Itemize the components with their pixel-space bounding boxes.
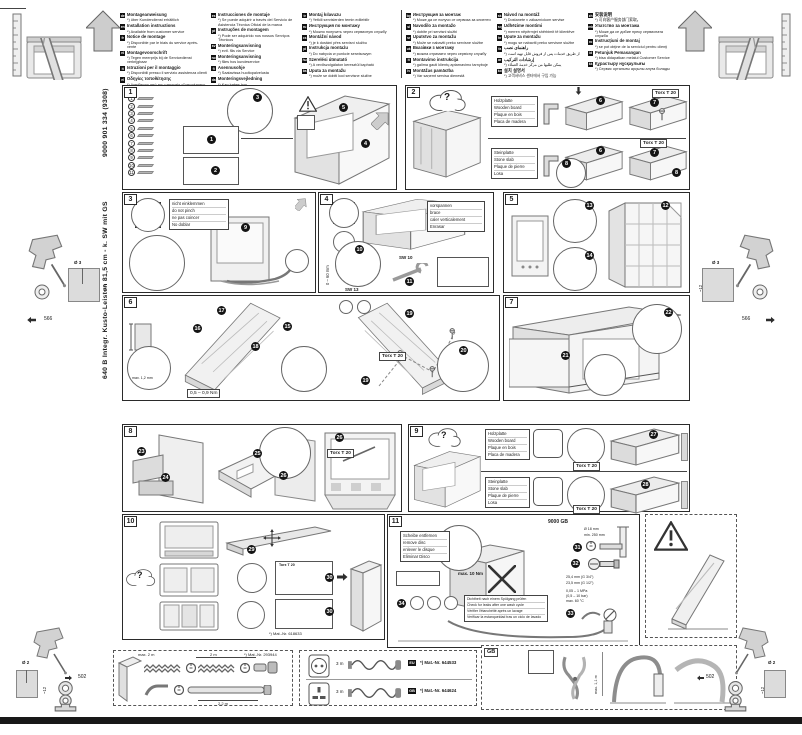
hinge-icon: [722, 680, 749, 713]
language-code-badge: hu: [302, 58, 307, 63]
floor-hose-art: [398, 619, 628, 645]
no-kink-box: [297, 115, 315, 130]
washer-icon: [752, 284, 768, 300]
callout-9: 9: [241, 223, 250, 232]
parts-list-row: 4: [128, 117, 153, 124]
step-number: 8: [124, 426, 137, 437]
pressure-bar-spec: (0,5 – 10 bar): [566, 594, 588, 598]
step-6-panel: 6 max. 1,2 mm 17 16 18 15 0,5 – 0,9 Nm 1…: [122, 295, 500, 401]
step-number: 2: [407, 87, 420, 98]
language-title: Вказівки з монтажу: [413, 46, 454, 51]
drill-depth-block: [16, 670, 38, 698]
language-code-badge: it: [120, 66, 125, 71]
part-number-badge: 10: [128, 162, 135, 169]
countertop-art: [609, 427, 681, 467]
language-title: Navodilo za montažo: [413, 24, 456, 29]
extension-hose-icon: [198, 663, 238, 673]
step-7-panel: 7 21 22: [503, 295, 690, 401]
cabinet-variant-3: [159, 601, 219, 631]
language-entry: mkУпатство за монтажа*) Може да се добие…: [588, 24, 675, 38]
stone-label-box: Steinplatte Stone slab Plaque de pierre …: [485, 477, 530, 508]
part-number-badge: 8: [128, 147, 135, 154]
language-code-badge: hr: [497, 35, 502, 40]
parts-list-row: 9: [128, 154, 153, 161]
language-entry: trMontaj kılavuzu*) Yetkili servislerden…: [302, 13, 389, 23]
language-title: Monteringsanvisning: [218, 55, 261, 60]
language-title: Montāžas pamācība: [413, 69, 454, 74]
temp-spec: max. 60 °C: [566, 599, 584, 603]
part-icon: [136, 119, 153, 122]
torque-limit: max. 10 Nm: [458, 571, 483, 576]
parts-list-row: 10: [128, 162, 153, 169]
language-note: *) Disponible par le biais du service ap…: [127, 41, 207, 49]
mat-nr-label: *) Mat.-Nr. 618633: [269, 631, 302, 636]
step-11-panel: 11 Scheibe entfernen remove disc enlever…: [387, 514, 640, 648]
language-entry: faراهنمای نصب*) از طریق خدمات پس از فروش…: [497, 46, 584, 56]
language-entry: ukВказівки з монтажу*) можна отримати че…: [406, 46, 493, 56]
power-cord-box: 3 m EU *) Mat.-Nr. 644533 3 m GB *) Mat.…: [299, 650, 477, 706]
dim-arrow-icon: [760, 315, 782, 325]
dim-line: [196, 657, 256, 658]
language-note: *) Може да се получи от сервиза за клиен…: [413, 18, 493, 22]
language-code-badge: no: [211, 55, 216, 60]
hose-ok-box: [396, 571, 440, 586]
callout-30: 30: [325, 573, 334, 582]
drill-icon: [20, 233, 72, 289]
language-note: *) A vevőszolgálaton keresztül kapható: [309, 63, 389, 67]
language-code-badge: pl: [302, 46, 307, 51]
language-entry: esInstrucciones de montaje*) Se puede ad…: [211, 13, 298, 27]
stone-label-box: Steinplatte Stone slab Plaque de pierre …: [491, 148, 538, 179]
label-line: Stone slab: [488, 486, 527, 493]
language-entry: plInstrukcja montażu*) Do nabycia w punk…: [302, 46, 389, 56]
callout-16: 16: [193, 324, 202, 333]
connector-icon: [252, 661, 280, 674]
callout-32: 32: [571, 559, 580, 568]
callout-27: 27: [649, 430, 658, 439]
callout-26: 26: [279, 471, 288, 480]
language-code-badge: bs: [302, 69, 307, 74]
callout-10: 10: [355, 245, 364, 254]
wrench-size-front: SW 13: [345, 287, 359, 292]
language-column-6: zh安装说明*) 可向客户服务部门索取。mkУпатство за монтаж…: [588, 13, 675, 73]
cord-icon: [348, 655, 402, 675]
detail-circle: [567, 428, 605, 466]
callout-11: 11: [405, 277, 414, 286]
ok-circle: [339, 300, 353, 314]
hose-extension-box: max. 2 m 2 m *) Mat.-Nr. 293944 2,2 m: [113, 650, 293, 706]
language-entry: fiAsennusohje*) Saatavissa huoltopalvelu…: [211, 66, 298, 76]
socket-gb-icon: [308, 682, 330, 706]
ref-number: 9000 GB: [548, 519, 568, 525]
language-note: *) dobite pri servisni službi: [413, 30, 493, 34]
language-entry: ko설치 설명서*) 고객서비스 센터에서 구입 가능: [497, 69, 584, 79]
language-note: *) Yetkili servislerden temin edilebilir: [309, 18, 389, 22]
installation-sheet: deMontageanweisung*) über Kundendienst e…: [0, 0, 802, 735]
language-note: *) Pode ser adquirido nos nossos Serviço…: [218, 34, 298, 42]
language-note: *) Dostanete v zákazníckom servise: [504, 18, 584, 22]
hole-depth-label: ~12: [102, 285, 107, 292]
language-title: Upute za montažu: [504, 35, 541, 40]
language-entry: zh安装说明*) 可向客户服务部门索取。: [588, 13, 675, 23]
language-entry: bgИнструкция за монтаж*) Може да се полу…: [406, 13, 493, 23]
question-mark: ?: [444, 92, 450, 103]
language-note: *) merren nëpërmjet shërbimit të klientë…: [504, 30, 584, 34]
parts-list-row: 7: [128, 139, 153, 146]
language-code-badge: fr: [120, 35, 125, 40]
cord-length-a: 3 m: [336, 661, 344, 666]
adjust-range-dim: 0 – 60 mm: [325, 265, 330, 285]
edge-gap-dim: max. 1,2 mm: [132, 376, 153, 380]
callout-7: 7: [650, 98, 659, 107]
doc-number: 9000 901 334 (9308): [102, 85, 109, 161]
language-code-badge: el: [120, 77, 125, 82]
callout-14: 14: [585, 251, 594, 260]
step-5-panel: 5 13 14 12: [503, 192, 690, 293]
torx-label: Torx T 20: [573, 462, 600, 471]
bracket-icon: [542, 100, 562, 126]
callout-7: 7: [650, 148, 659, 157]
label-line: Losa: [488, 500, 527, 506]
language-entry: csMontážní návod*) je k dostání přes ser…: [302, 35, 389, 45]
language-code-badge: sr: [406, 35, 411, 40]
language-code-badge: ru: [302, 24, 307, 29]
language-code-badge: zh: [588, 13, 593, 18]
torx-label: Torx T 20: [640, 139, 667, 148]
callout-28: 28: [641, 480, 650, 489]
detail-circle: [281, 346, 327, 392]
language-note: *) Do nabycia w punkcie serwisowym: [309, 52, 389, 56]
label-line: Wooden board: [488, 438, 527, 445]
callout-12: 12: [661, 201, 670, 210]
callout-1: 1: [207, 135, 216, 144]
parts-list-row: 2: [128, 102, 153, 109]
part-number-badge: 6: [128, 132, 135, 139]
detail-circle: [632, 304, 682, 354]
label-line: enlever le disque: [403, 547, 447, 554]
prohibited-cross-icon: [488, 565, 516, 593]
detail-circle-small: [285, 249, 309, 273]
language-title: Istruzioni per il montaggio: [127, 66, 181, 71]
language-title: Monteringsvejledning: [218, 77, 262, 82]
label-line: No doblar: [172, 222, 226, 228]
language-title: Instrucciones de montaje: [218, 13, 270, 18]
label-line: do not pinch: [172, 208, 226, 215]
crop-mark: [0, 8, 26, 9]
door-film-art: [607, 197, 687, 290]
cabinet-corner-art: [349, 559, 383, 635]
dim-line: [602, 652, 603, 696]
part-number-badge: 11: [128, 169, 135, 176]
open-dishwasher-art: [323, 431, 397, 511]
parts-list-row: 6: [128, 132, 153, 139]
leaning-panel-art: [666, 549, 730, 631]
detail-circle: [237, 601, 265, 629]
corrugated-hose-icon: [144, 663, 184, 673]
label-line: Eliminar Disco: [403, 554, 447, 560]
language-entry: itIstruzioni per il montaggio*) Disponib…: [120, 66, 207, 76]
language-title: Құрастыру нұсқаулығы: [595, 62, 645, 67]
eu-mat-nr: *) Mat.-Nr. 644533: [420, 660, 456, 665]
hole-depth-label: ~12: [42, 687, 47, 694]
callout-6: 6: [596, 146, 605, 155]
language-note: *) Se puede adquirir a través del Servic…: [218, 18, 298, 26]
warning-triangle-icon: [299, 96, 317, 112]
step-number: 1: [124, 87, 137, 98]
dim-arrow-icon: [693, 674, 707, 682]
language-title: Montaj kılavuzu: [309, 13, 341, 18]
part-icon: [136, 112, 153, 115]
parts-list-row: 5: [128, 125, 153, 132]
wood-label-box: Holzplatte Wooden board Plaque en bois P…: [485, 429, 530, 460]
language-entry: deMontageanweisung*) über Kundendienst e…: [120, 13, 207, 23]
hose-clamp-icon: [586, 541, 626, 553]
length-b-label: 2,2 m: [218, 701, 228, 706]
language-code-badge: lv: [406, 69, 411, 74]
callout-29: 29: [247, 545, 256, 554]
language-code-badge: da: [211, 77, 216, 82]
drill-icon: [730, 233, 782, 289]
wood-icon-box: [533, 429, 563, 458]
wood-label-box: Holzplatte Wooden board Plaque en bois P…: [491, 96, 538, 127]
stone-icon-box: [533, 477, 563, 506]
spring-clip-box: [275, 599, 333, 629]
drain-hose-curve-icon: [610, 652, 666, 704]
label-line: brace: [430, 210, 482, 217]
hole-line: [26, 670, 27, 683]
language-code-badge: nl: [120, 51, 125, 56]
length-a-label: 2 m: [210, 652, 217, 657]
arrow-up-icon: [295, 197, 307, 211]
language-entry: frNotice de montage*) Disponible par le …: [120, 35, 207, 49]
language-code-badge: kk: [588, 62, 593, 67]
door-template-art: [161, 300, 306, 398]
dishwasher-iso-art: [412, 102, 482, 182]
language-note: *) galima gauti klientų aptarnavimo tarn…: [413, 63, 493, 67]
parts-list-row: 11: [128, 169, 153, 176]
callout-5: 5: [339, 103, 348, 112]
part-number-badge: 4: [128, 117, 135, 124]
part-icon: [136, 142, 153, 145]
step-3-panel: 3 nicht einklemmen do not pinch ne pas c…: [122, 192, 316, 293]
language-note: *) može se dobiti kod servisne službe: [309, 74, 389, 78]
mat-nr-label: *) Mat.-Nr. 293944: [244, 652, 277, 657]
language-note: *) über Kundendienst erhältlich: [127, 18, 207, 22]
callout-21: 21: [561, 351, 570, 360]
dim-arrow-icon: [62, 674, 76, 682]
part-number-badge: 2: [128, 103, 135, 110]
check-icon-circle: [444, 596, 458, 610]
side-panel-art: [117, 655, 143, 703]
part-icon: [136, 127, 153, 130]
language-column-3: trMontaj kılavuzu*) Yetkili servislerden…: [302, 13, 389, 80]
language-title: Инструкция за монтаж: [413, 13, 461, 18]
alignment-pictogram-box: [437, 257, 489, 287]
torx-label: Torx T 20: [327, 449, 354, 458]
eu-region-badge: EU: [408, 660, 416, 666]
step-number: 4: [320, 194, 333, 205]
language-entry: enInstallation instructions*) Available …: [120, 24, 207, 34]
step-9-panel: 9 ? Holzplatte Wooden board Plaque en bo…: [408, 424, 690, 512]
detail-circle: [556, 158, 586, 188]
ruler-icon: [781, 13, 791, 77]
callout-22: 22: [664, 308, 673, 317]
callout-20: 20: [459, 346, 468, 355]
language-title: Uputa za montažu: [309, 69, 346, 74]
part-icon: [136, 149, 153, 152]
label-line: Plaque de pierre: [488, 493, 527, 500]
pinch-note-box: nicht einklemmen do not pinch ne pas coi…: [169, 199, 229, 230]
language-note: *) Available from customer service: [127, 30, 207, 34]
language-entry: huSzerelési útmutató*) A vevőszolgálaton…: [302, 58, 389, 68]
language-title: Installation instructions: [127, 24, 175, 29]
pliers-icon: [556, 654, 596, 702]
thread-size-a: 25,4 mm (G 3/4"): [566, 575, 593, 579]
language-code-badge: cs: [302, 35, 307, 40]
language-code-badge: de: [120, 13, 125, 18]
gb-mat-nr: *) Mat.-Nr. 644624: [420, 688, 456, 693]
step-number: 5: [505, 194, 518, 205]
drill-depth-block: [764, 670, 786, 698]
language-note: *) je k dostání přes servisní službu: [309, 41, 389, 45]
language-title: Udhëzime montimi: [504, 24, 542, 29]
arrow-up-icon: [86, 10, 120, 52]
language-note: *) يمكن طلبها من مركز خدمة العملاء: [504, 63, 584, 67]
language-note: *) fåes hos kundeservice: [218, 60, 298, 64]
hole-depth-label: ~12: [698, 285, 703, 292]
drill-icon: [730, 626, 776, 676]
language-column-1: deMontageanweisung*) über Kundendienst e…: [120, 13, 207, 92]
language-entry: lvMontāžas pamācība*) Var saņemt servisa…: [406, 69, 493, 79]
language-title: Οδηγίες τοποθέτησης: [127, 77, 171, 82]
language-code-badge: sv: [211, 44, 216, 49]
part-icon: [136, 164, 153, 167]
inner-door-art: [511, 215, 549, 277]
language-entry: kkҚұрастыру нұсқаулығы*) Сервис орталығы…: [588, 62, 675, 72]
callout-8: 8: [672, 168, 681, 177]
hose-diameter-dim: Ø 18 mm: [584, 527, 599, 531]
step-number: 6: [124, 297, 137, 308]
clamp-icon: [240, 663, 250, 673]
language-title: 설치 설명서: [504, 69, 525, 74]
language-title: Montážní návod: [309, 35, 341, 40]
hole-depth-label: ~12: [760, 687, 765, 694]
drill-depth-block: [702, 268, 734, 302]
language-title: Instruções de montagem: [218, 28, 269, 33]
callout-24: 24: [161, 473, 170, 482]
offset-dim: 566: [742, 316, 750, 322]
language-entry: arإرشادات التركيب*) يمكن طلبها من مركز خ…: [497, 58, 584, 68]
hole-diameter-label: Ø 3: [74, 260, 81, 265]
label-line: Steinplatte: [488, 479, 527, 486]
part-icon: [136, 97, 153, 100]
part-icon: [136, 171, 153, 174]
leader-line: [241, 138, 293, 139]
min-height-dim: min. 250 mm: [584, 533, 605, 537]
offset-dim: 502: [78, 674, 86, 680]
step-number: 11: [389, 516, 402, 527]
label-line: remove disc: [403, 540, 447, 547]
label-line: Steinplatte: [494, 150, 535, 157]
washer-icon: [34, 284, 50, 300]
clamp-icon: [186, 663, 196, 673]
language-title: Asennusohje: [218, 66, 245, 71]
callout-33: 33: [566, 609, 575, 618]
language-code-badge: tr: [302, 13, 307, 18]
language-column-4: bgИнструкция за монтаж*) Може да се полу…: [406, 13, 493, 80]
language-title: إرشادات التركيب: [504, 58, 534, 63]
language-note: *) bisa didapatkan melalui Customer Serv…: [595, 56, 675, 60]
callout-19: 19: [405, 309, 414, 318]
language-code-badge: sq: [497, 24, 502, 29]
torx-label: Torx T 20: [573, 505, 600, 514]
label-line: Placa de madera: [494, 119, 535, 125]
screw-icon: [658, 108, 666, 122]
callout-19: 19: [361, 376, 370, 385]
hole-line: [82, 268, 83, 284]
torx-label: Torx T 20: [652, 89, 679, 98]
language-title: Montagevoorschrift: [127, 51, 167, 56]
part-icon: [136, 105, 153, 108]
language-column-5: skNávod na montáž*) Dostanete v zákazníc…: [497, 13, 584, 80]
label-line: Plaque de pierre: [494, 164, 535, 171]
callout-31: 31: [573, 543, 582, 552]
language-entry: ltMontavimo instrukcija*) galima gauti k…: [406, 58, 493, 68]
language-code-badge: sk: [497, 13, 502, 18]
callout-34: 34: [397, 599, 406, 608]
part-icon: [136, 134, 153, 137]
label-line: nicht einklemmen: [172, 201, 226, 208]
language-code-badge: ro: [588, 39, 593, 44]
language-note: *) 고객서비스 센터에서 구입 가능: [504, 74, 584, 78]
dim-arrow-icon: [20, 315, 42, 325]
language-column-2: esInstrucciones de montaje*) Se puede ad…: [211, 13, 298, 92]
pressure-spec: 0,05 – 1 MPa: [566, 589, 587, 593]
language-entry: sqUdhëzime montimi*) merren nëpërmjet sh…: [497, 24, 584, 34]
language-note: *) Tegen meerprijs bij de Servicedienst …: [127, 56, 207, 64]
drill-depth-block: [68, 268, 100, 302]
row-divider: [306, 679, 472, 680]
wrench-size-rear: SW 10: [399, 255, 413, 260]
label-line: ne pas coincer: [172, 215, 226, 222]
gb-label: GB: [484, 648, 498, 657]
warning-triangle-icon: [654, 521, 688, 551]
max-length-label: max. 2 m: [138, 652, 154, 657]
callout-13: 13: [585, 201, 594, 210]
callout-23: 23: [137, 447, 146, 456]
step-10-panel: 10 ? 29 Torx T 20 30 30 *) Mat.-Nr. 6186…: [122, 514, 385, 640]
question-mark: ?: [441, 430, 447, 440]
bin-box: [528, 650, 554, 674]
language-title: Instrucţiuni de montaj: [595, 39, 640, 44]
gb-region-badge: GB: [408, 688, 416, 694]
part-number-badge: 3: [128, 110, 135, 117]
part-icon: [136, 156, 153, 159]
language-code-badge: ko: [497, 69, 502, 74]
down-arrow-icon: [574, 86, 583, 97]
clamp-icon: [174, 685, 184, 695]
language-title: Monteringsanvisning: [218, 44, 261, 49]
language-entry: nlMontagevoorschrift*) Tegen meerprijs b…: [120, 51, 207, 65]
callout-18: 18: [251, 342, 260, 351]
language-note: *) Сервис орталығы арқылы алуға болады: [595, 67, 675, 71]
language-entry: noMonteringsanvisning*) fåes hos kundese…: [211, 55, 298, 65]
language-entry: bsUputa za montažu*) može se dobiti kod …: [302, 69, 389, 79]
step-1-panel: 1 1234567891011 3 1 2 5 4: [122, 85, 397, 190]
language-code-badge: fi: [211, 66, 216, 71]
detail-circle: [129, 235, 185, 291]
door-bracket-art: [129, 433, 207, 509]
